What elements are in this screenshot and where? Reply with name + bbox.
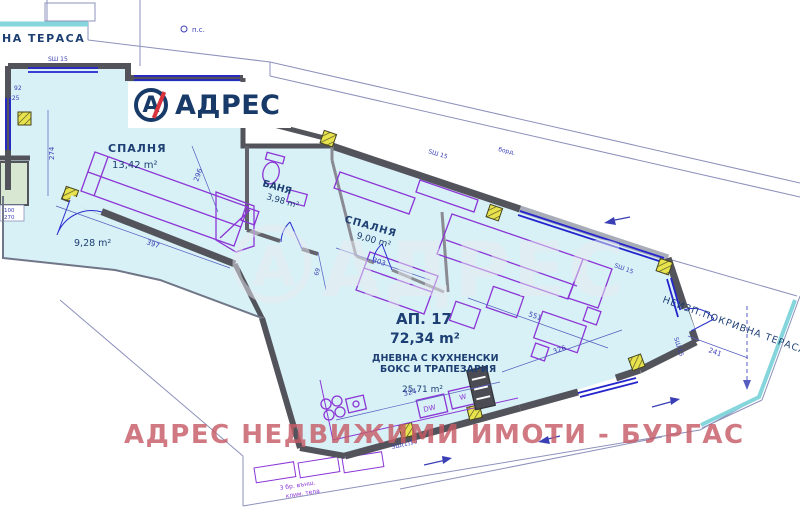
terrace-arrow-dashed (743, 306, 751, 390)
label-ps: п.с. (192, 26, 205, 34)
agency-logo-text: АДРЕС (175, 90, 281, 121)
label-bord: борд. (498, 146, 516, 157)
ac-unit (298, 457, 340, 478)
column (18, 112, 31, 125)
bedroom1-name: СПАЛНЯ (108, 142, 167, 155)
floor-plan-canvas: А АДРЕС СПАЛНЯ 13,42 m² БАНЯ 3,98 m² СПА… (0, 0, 800, 532)
apartment-area: 72,34 m² (390, 331, 460, 347)
arrow-head (604, 217, 616, 225)
bedroom1-area: 13,42 m² (112, 160, 158, 171)
label-sw15: SШ 15 (427, 148, 448, 161)
arrow-head (743, 380, 751, 390)
dim-100: 100 (4, 208, 15, 214)
terrace-left-area: 9,28 m² (74, 238, 111, 249)
neighbor-unit (0, 162, 28, 205)
watermark-monogram: А (252, 235, 296, 300)
arrow-head (670, 397, 680, 405)
floor-plan-drawing: А АДРЕС СПАЛНЯ 13,42 m² БАНЯ 3,98 m² СПА… (0, 0, 800, 532)
dim-225: 225 (8, 95, 20, 102)
label-sw15: SШ 15 (48, 56, 68, 63)
dim-274: 274 (48, 146, 56, 160)
agency-logo-icon: А (134, 88, 168, 122)
dim-270: 270 (4, 215, 15, 221)
apartment-label: АП. 17 (396, 310, 452, 328)
ac-units (254, 452, 384, 483)
ps-marker (181, 26, 187, 32)
agency-logo: А АДРЕС (128, 82, 291, 128)
outline-top-terrace-edge (88, 40, 270, 62)
ac-unit (254, 462, 296, 483)
living-name-1: ДНЕВНА С КУХНЕНСКИ (372, 353, 499, 364)
arrow-head (442, 456, 452, 464)
dim-92: 92 (14, 85, 22, 92)
terrace-top-name: НА ТЕРАСА (2, 32, 85, 45)
bottom-watermark: АДРЕС НЕДВИЖИМИ ИМОТИ - БУРГАС (124, 420, 745, 450)
living-name-2: БОКС И ТРАПЕЗАРИЯ (380, 364, 496, 375)
rooftop-box (45, 3, 95, 21)
